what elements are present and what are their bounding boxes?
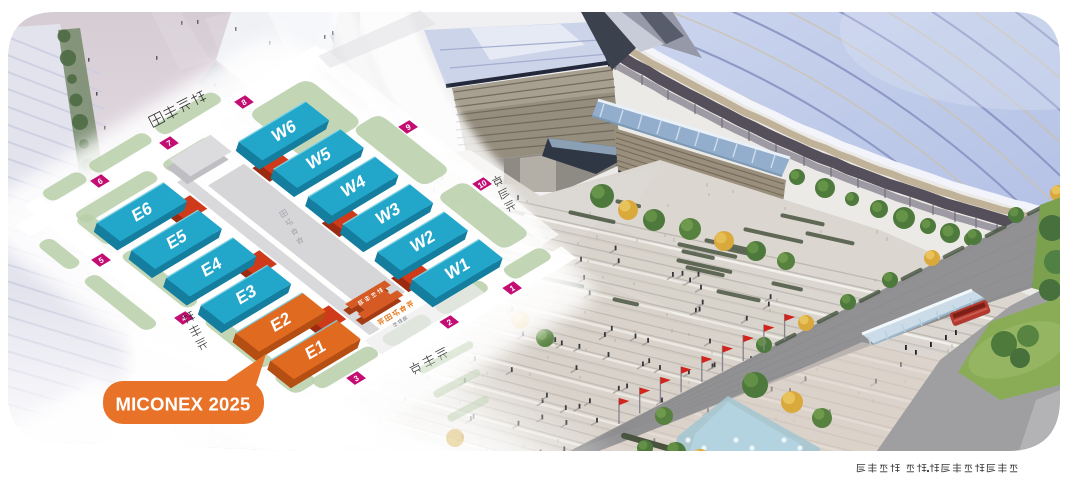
svg-text:MICONEX 2025: MICONEX 2025 — [115, 394, 250, 415]
